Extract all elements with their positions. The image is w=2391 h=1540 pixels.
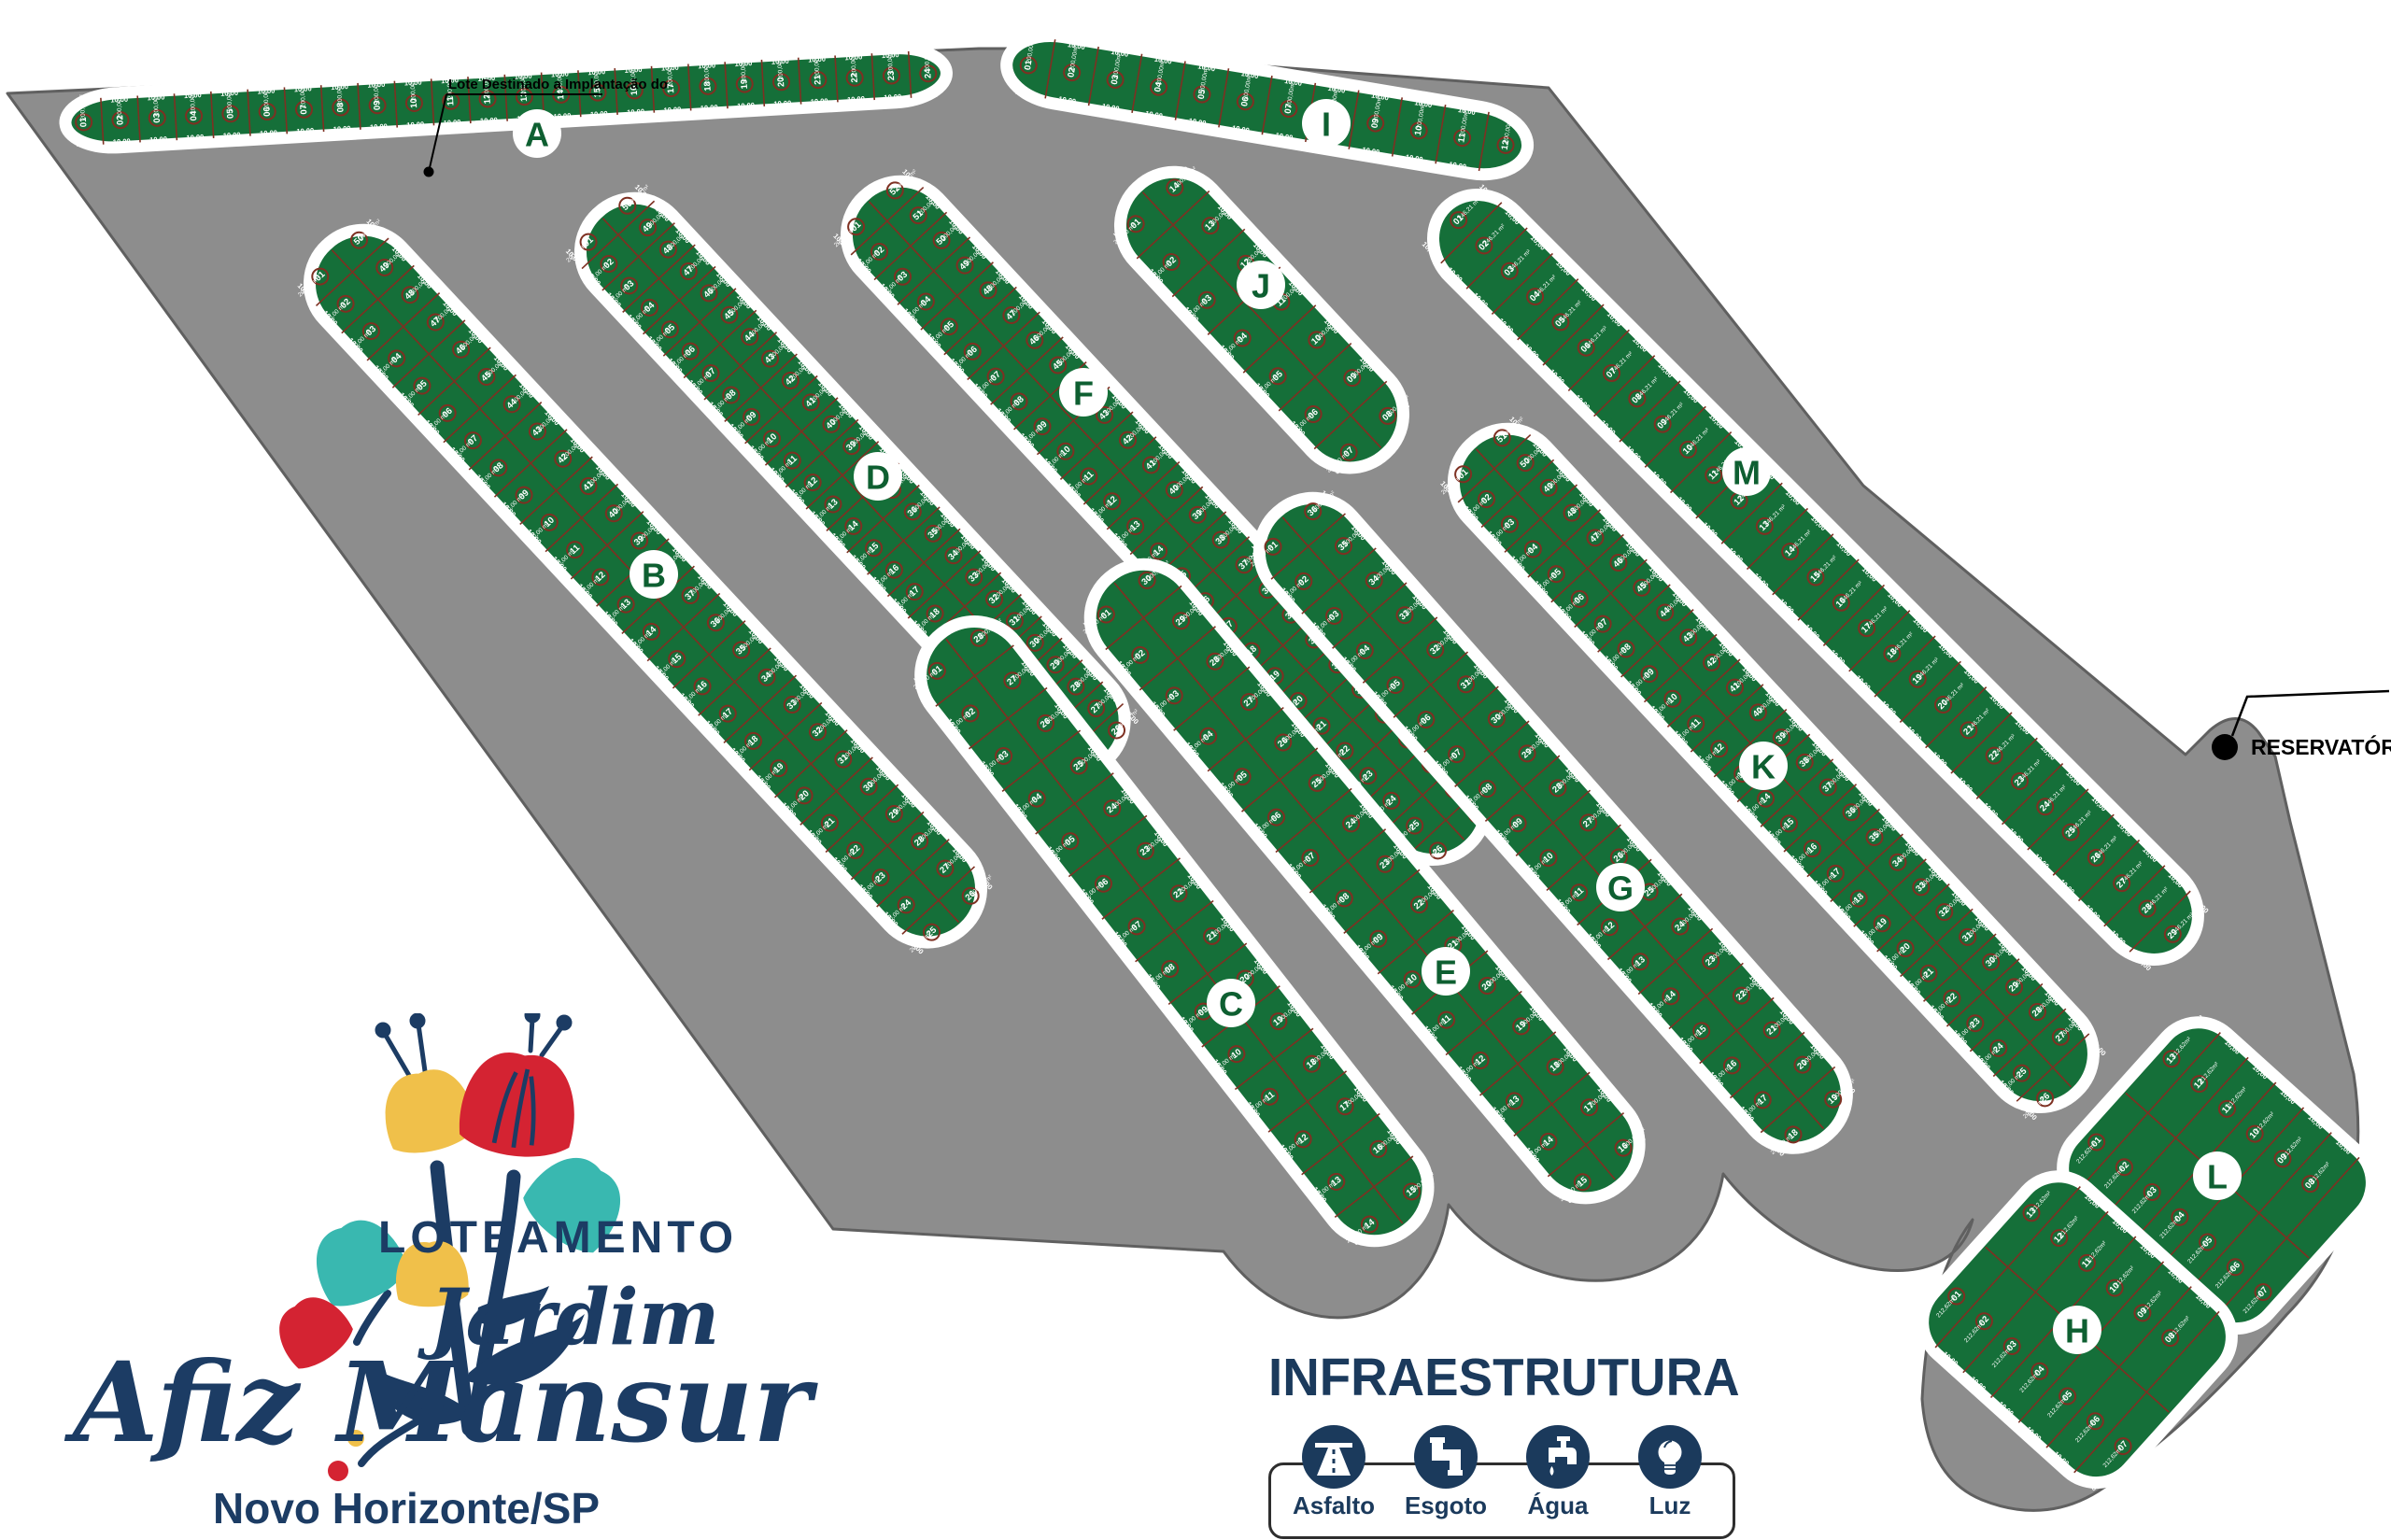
infra-item-luz: Luz bbox=[1618, 1423, 1722, 1520]
svg-text:F: F bbox=[1073, 374, 1094, 413]
svg-text:10,00: 10,00 bbox=[811, 96, 828, 106]
svg-text:10,00: 10,00 bbox=[587, 67, 605, 77]
svg-text:B: B bbox=[642, 557, 666, 595]
svg-text:10,00: 10,00 bbox=[700, 103, 718, 112]
svg-text:RESERVATÓRIO: RESERVATÓRIO bbox=[2251, 734, 2391, 759]
block-letter-G: G bbox=[1596, 863, 1645, 911]
svg-text:10,00: 10,00 bbox=[808, 55, 826, 64]
logo-city-text: Novo Horizonte/SP bbox=[213, 1483, 600, 1533]
svg-text:10,00: 10,00 bbox=[76, 139, 93, 148]
faucet-icon bbox=[1524, 1423, 1592, 1491]
svg-text:10,00: 10,00 bbox=[663, 106, 681, 115]
svg-text:L: L bbox=[2207, 1158, 2228, 1196]
svg-text:10,00: 10,00 bbox=[590, 109, 608, 119]
development-logo: LOTEAMENTO Jardim Afiz Mansur Novo Horiz… bbox=[56, 1009, 953, 1540]
svg-text:10,00: 10,00 bbox=[480, 116, 498, 125]
reservatorio-dot bbox=[2212, 734, 2238, 760]
svg-text:10,00: 10,00 bbox=[367, 80, 385, 90]
block-letter-J: J bbox=[1237, 261, 1285, 309]
svg-text:10,00: 10,00 bbox=[624, 65, 642, 75]
block-letter-B: B bbox=[630, 550, 678, 599]
logo-development-name: Afiz Mansur bbox=[73, 1337, 812, 1467]
svg-text:M: M bbox=[1733, 454, 1761, 492]
infra-item-esgoto: Esgoto bbox=[1394, 1423, 1498, 1520]
svg-text:10,00: 10,00 bbox=[734, 59, 752, 68]
block-letter-K: K bbox=[1739, 742, 1788, 790]
infrastructure-panel: INFRAESTRUTURA Asfalto Esgoto bbox=[1268, 1347, 1735, 1538]
svg-text:10,00: 10,00 bbox=[113, 137, 131, 147]
svg-text:10,00: 10,00 bbox=[737, 101, 755, 110]
road-icon bbox=[1300, 1423, 1367, 1491]
svg-text:10,00: 10,00 bbox=[404, 78, 422, 87]
sewer-pipe-icon bbox=[1412, 1423, 1479, 1491]
block-letter-H: H bbox=[2053, 1306, 2101, 1354]
infrastructure-title: INFRAESTRUTURA bbox=[1268, 1347, 1717, 1408]
svg-text:J: J bbox=[1252, 267, 1270, 305]
svg-text:10,00: 10,00 bbox=[661, 64, 679, 73]
svg-text:10,00: 10,00 bbox=[844, 52, 862, 62]
svg-text:D: D bbox=[866, 459, 890, 497]
block-letter-C: C bbox=[1207, 979, 1255, 1027]
block-letter-I: I bbox=[1302, 99, 1351, 148]
svg-text:10,00: 10,00 bbox=[223, 131, 241, 140]
svg-text:10,00: 10,00 bbox=[920, 91, 938, 100]
svg-text:Lote Destinado a Implantação d: Lote Destinado a Implantação do bbox=[448, 77, 668, 92]
svg-text:10,00: 10,00 bbox=[257, 87, 275, 96]
infra-item-asfalto: Asfalto bbox=[1281, 1423, 1386, 1520]
svg-text:10,00: 10,00 bbox=[406, 120, 424, 129]
svg-text:10,00: 10,00 bbox=[443, 118, 460, 127]
svg-text:10,00: 10,00 bbox=[918, 49, 936, 58]
infra-item-agua: Água bbox=[1506, 1423, 1610, 1520]
svg-text:10,00: 10,00 bbox=[296, 126, 314, 135]
svg-text:10,00: 10,00 bbox=[627, 107, 644, 117]
svg-text:E: E bbox=[1435, 954, 1457, 992]
svg-text:10,00: 10,00 bbox=[882, 50, 899, 60]
svg-text:10,00: 10,00 bbox=[147, 92, 164, 102]
svg-text:10,00: 10,00 bbox=[333, 124, 351, 134]
svg-text:10,00: 10,00 bbox=[370, 122, 388, 132]
svg-text:K: K bbox=[1751, 748, 1776, 786]
block-letter-D: D bbox=[854, 452, 902, 501]
block-letter-M: M bbox=[1722, 447, 1771, 496]
lote-destinado-dot bbox=[424, 167, 434, 177]
svg-text:10,00: 10,00 bbox=[771, 57, 789, 66]
svg-text:10,00: 10,00 bbox=[186, 133, 204, 142]
svg-text:A: A bbox=[525, 116, 549, 154]
block-letter-A: A bbox=[513, 109, 561, 158]
svg-text:10,00: 10,00 bbox=[184, 91, 202, 100]
svg-text:C: C bbox=[1219, 985, 1243, 1024]
svg-text:G: G bbox=[1607, 869, 1634, 908]
svg-text:10,00: 10,00 bbox=[74, 97, 92, 106]
svg-text:10,00: 10,00 bbox=[110, 95, 128, 105]
svg-text:10,00: 10,00 bbox=[698, 61, 715, 70]
block-letter-L: L bbox=[2193, 1151, 2242, 1200]
svg-text:10,00: 10,00 bbox=[220, 89, 238, 98]
logo-loteamento-text: LOTEAMENTO bbox=[378, 1212, 738, 1264]
svg-text:10,00: 10,00 bbox=[149, 134, 167, 144]
svg-text:H: H bbox=[2065, 1312, 2089, 1350]
svg-text:10,00: 10,00 bbox=[847, 94, 865, 104]
block-letter-F: F bbox=[1059, 368, 1108, 417]
svg-text:10,00: 10,00 bbox=[884, 92, 901, 102]
svg-text:10,00: 10,00 bbox=[260, 128, 277, 137]
block-letter-E: E bbox=[1422, 947, 1470, 996]
svg-text:10,00: 10,00 bbox=[773, 99, 791, 108]
svg-text:I: I bbox=[1322, 106, 1331, 144]
svg-text:10,00: 10,00 bbox=[331, 82, 348, 92]
light-bulb-icon bbox=[1636, 1423, 1704, 1491]
svg-text:10,00: 10,00 bbox=[294, 84, 312, 93]
subdivision-map-poster: 01200,00m²10,0010,0002200,00m²10,0010,00… bbox=[0, 0, 2391, 1540]
